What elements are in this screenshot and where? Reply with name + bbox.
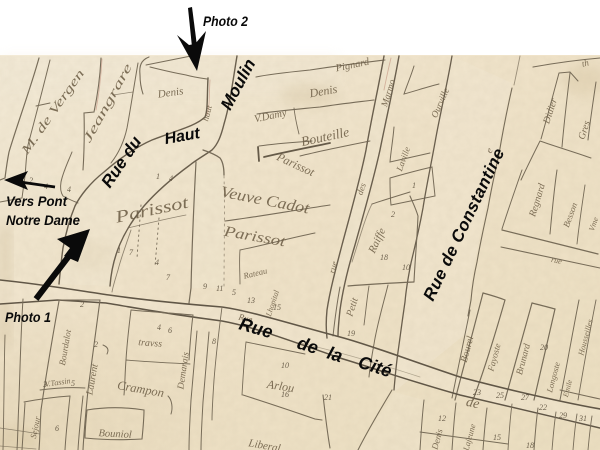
- svg-text:31: 31: [578, 414, 587, 423]
- svg-text:1: 1: [156, 172, 160, 181]
- svg-text:2: 2: [94, 340, 98, 349]
- svg-text:21: 21: [324, 393, 332, 402]
- svg-text:Photo 2: Photo 2: [203, 13, 248, 29]
- svg-text:1: 1: [117, 246, 121, 255]
- svg-text:16: 16: [281, 390, 289, 399]
- svg-text:13: 13: [247, 296, 255, 305]
- svg-text:6: 6: [168, 326, 172, 335]
- svg-text:3: 3: [42, 380, 47, 389]
- svg-text:6: 6: [55, 424, 59, 433]
- svg-text:Bouniol: Bouniol: [98, 428, 132, 441]
- svg-text:29: 29: [559, 411, 567, 420]
- svg-text:1: 1: [412, 181, 416, 190]
- svg-text:10: 10: [281, 361, 289, 370]
- svg-text:12: 12: [438, 414, 446, 423]
- svg-text:23: 23: [473, 388, 481, 397]
- svg-text:9: 9: [203, 282, 207, 291]
- svg-text:18: 18: [380, 253, 388, 262]
- svg-text:4: 4: [157, 323, 161, 332]
- svg-text:11: 11: [216, 284, 223, 293]
- svg-text:Vers Pont: Vers Pont: [6, 193, 68, 209]
- svg-text:4: 4: [67, 185, 71, 194]
- svg-text:travss: travss: [138, 337, 163, 350]
- svg-text:18: 18: [526, 441, 534, 450]
- svg-text:Notre Dame: Notre Dame: [6, 212, 80, 228]
- svg-text:2: 2: [80, 300, 84, 309]
- svg-text:2: 2: [391, 210, 395, 219]
- svg-text:5: 5: [71, 379, 75, 388]
- svg-text:15: 15: [273, 303, 281, 312]
- svg-text:27: 27: [521, 393, 530, 402]
- svg-text:5: 5: [232, 288, 236, 297]
- svg-text:19: 19: [347, 329, 355, 338]
- svg-text:4: 4: [155, 258, 159, 267]
- svg-text:20: 20: [540, 343, 548, 352]
- svg-text:25: 25: [496, 391, 504, 400]
- svg-text:22: 22: [539, 403, 547, 412]
- svg-text:8: 8: [212, 337, 216, 346]
- svg-text:4: 4: [169, 174, 173, 183]
- svg-text:10: 10: [402, 263, 410, 272]
- svg-text:Photo 1: Photo 1: [5, 309, 51, 325]
- svg-text:15: 15: [493, 433, 501, 442]
